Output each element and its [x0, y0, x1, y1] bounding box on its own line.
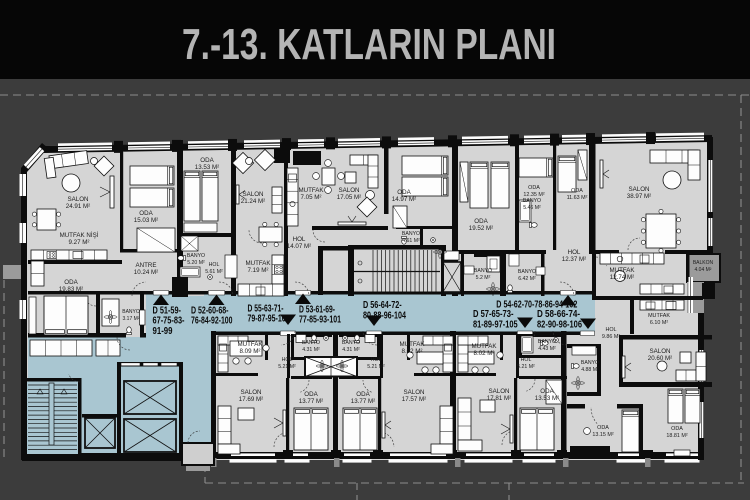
svg-text:7.-13. KATLARIN PLANI: 7.-13. KATLARIN PLANI [182, 20, 556, 69]
svg-text:15.03 M²: 15.03 M² [134, 217, 158, 224]
svg-text:4.43 M²: 4.43 M² [538, 346, 556, 352]
svg-text:4.04 M²: 4.04 M² [695, 267, 712, 273]
svg-text:BALKON: BALKON [693, 260, 714, 266]
svg-text:SALON: SALON [650, 348, 671, 355]
svg-text:13.77 M²: 13.77 M² [299, 398, 323, 405]
svg-text:12.74 M²: 12.74 M² [610, 274, 634, 281]
svg-text:HOL: HOL [521, 357, 532, 363]
svg-text:81-89-97-105: 81-89-97-105 [473, 320, 518, 331]
svg-text:ODA: ODA [200, 157, 214, 164]
svg-text:SALON: SALON [243, 191, 264, 198]
svg-text:7.05 M²: 7.05 M² [301, 194, 322, 201]
svg-text:HOL: HOL [293, 236, 306, 243]
svg-text:5.46 M²: 5.46 M² [523, 205, 541, 211]
svg-text:17.69 M²: 17.69 M² [239, 396, 263, 403]
svg-text:ODA: ODA [139, 210, 153, 217]
svg-text:MUTFAK: MUTFAK [399, 341, 425, 348]
svg-text:BANYO: BANYO [518, 269, 536, 275]
svg-text:HOL: HOL [371, 357, 382, 363]
svg-text:BANYO: BANYO [122, 309, 140, 315]
svg-text:82-90-98-106: 82-90-98-106 [537, 320, 582, 331]
svg-text:4.31 M²: 4.31 M² [342, 347, 360, 353]
svg-text:19.83 M²: 19.83 M² [59, 286, 83, 293]
svg-text:12.37 M²: 12.37 M² [562, 256, 586, 263]
svg-text:MUTFAK: MUTFAK [609, 267, 635, 274]
svg-text:5.21 M²: 5.21 M² [517, 364, 535, 370]
svg-text:5.20 M²: 5.20 M² [187, 260, 205, 266]
svg-text:ODA: ODA [356, 391, 370, 398]
svg-text:4.31 M²: 4.31 M² [302, 347, 320, 353]
svg-text:5.2 M²: 5.2 M² [476, 275, 491, 281]
svg-text:SALON: SALON [68, 196, 89, 203]
svg-text:20.60 M²: 20.60 M² [648, 355, 672, 362]
svg-text:D 58-66-74-: D 58-66-74- [537, 309, 580, 320]
svg-text:ANTRE: ANTRE [136, 262, 157, 269]
svg-text:SALON: SALON [629, 186, 650, 193]
svg-text:8.02 M²: 8.02 M² [402, 348, 423, 355]
svg-text:ODA: ODA [304, 391, 318, 398]
svg-text:SALON: SALON [404, 389, 425, 396]
svg-text:SALON: SALON [489, 388, 510, 395]
svg-text:BANYO: BANYO [342, 340, 360, 346]
svg-text:BANYO: BANYO [302, 340, 320, 346]
svg-text:BANYO: BANYO [402, 231, 420, 237]
svg-text:SALON: SALON [241, 389, 262, 396]
svg-text:11.63 M²: 11.63 M² [567, 195, 588, 201]
svg-text:MUTFAK: MUTFAK [237, 341, 263, 348]
svg-text:HOL: HOL [282, 357, 293, 363]
svg-text:18.81 M²: 18.81 M² [666, 433, 687, 439]
svg-text:BANYO: BANYO [581, 360, 599, 366]
svg-text:MUTFAK: MUTFAK [298, 187, 324, 194]
svg-text:24.91 M²: 24.91 M² [66, 203, 90, 210]
svg-text:19.52 M²: 19.52 M² [469, 225, 493, 232]
svg-text:17.57 M²: 17.57 M² [402, 396, 426, 403]
svg-text:6.10 M²: 6.10 M² [650, 320, 668, 326]
svg-text:17.81 M²: 17.81 M² [487, 395, 511, 402]
svg-text:91-99: 91-99 [153, 326, 173, 337]
svg-text:14.07 M²: 14.07 M² [287, 243, 311, 250]
svg-text:HOL: HOL [605, 327, 616, 333]
svg-text:77-85-93-101: 77-85-93-101 [299, 315, 341, 326]
svg-text:ODA: ODA [540, 388, 554, 395]
svg-text:9.86 M²: 9.86 M² [602, 334, 620, 340]
svg-text:MUTFAK: MUTFAK [648, 313, 670, 319]
svg-text:BANYO: BANYO [523, 198, 541, 204]
svg-text:MUTFAK: MUTFAK [245, 260, 271, 267]
svg-text:6.42 M²: 6.42 M² [518, 276, 536, 282]
svg-text:21.24 M²: 21.24 M² [241, 198, 265, 205]
svg-text:76-84-92-100: 76-84-92-100 [191, 316, 233, 327]
svg-text:ODA: ODA [397, 189, 411, 196]
svg-text:BANYO: BANYO [538, 339, 556, 345]
svg-text:17.05 M²: 17.05 M² [337, 194, 361, 201]
svg-text:BANYO: BANYO [187, 253, 205, 259]
svg-text:9.27 M²: 9.27 M² [69, 239, 90, 246]
svg-text:ODA: ODA [528, 185, 540, 191]
svg-text:SALON: SALON [339, 187, 360, 194]
svg-text:13.53 M²: 13.53 M² [195, 164, 219, 171]
svg-text:HOL: HOL [568, 249, 581, 256]
svg-text:MUTFAK: MUTFAK [471, 343, 497, 350]
svg-text:7.19 M²: 7.19 M² [248, 267, 269, 274]
svg-text:ODA: ODA [671, 426, 683, 432]
svg-text:D 57-65-73-: D 57-65-73- [473, 309, 514, 320]
svg-text:13.53 M²: 13.53 M² [535, 395, 559, 402]
svg-text:8.02 M²: 8.02 M² [474, 350, 495, 357]
svg-text:HOL: HOL [209, 262, 220, 268]
svg-text:ODA: ODA [64, 279, 78, 286]
svg-text:10.24 M²: 10.24 M² [134, 269, 158, 276]
svg-text:13.15 M²: 13.15 M² [592, 432, 613, 438]
svg-text:BANYO: BANYO [474, 268, 492, 274]
svg-text:ODA: ODA [474, 218, 488, 225]
svg-text:MUTFAK NİŞİ: MUTFAK NİŞİ [60, 232, 99, 239]
svg-text:13.77 M²: 13.77 M² [351, 398, 375, 405]
svg-text:8.09 M²: 8.09 M² [240, 348, 261, 355]
svg-text:ODA: ODA [597, 425, 609, 431]
svg-text:5.21 M²: 5.21 M² [367, 364, 385, 370]
svg-text:14.97 M²: 14.97 M² [392, 196, 416, 203]
svg-text:5.61 M²: 5.61 M² [205, 269, 223, 275]
svg-text:4.61 M²: 4.61 M² [402, 238, 420, 244]
svg-text:4.88 M²: 4.88 M² [581, 367, 599, 373]
svg-text:3.17 M²: 3.17 M² [123, 316, 140, 322]
svg-text:5.21 M²: 5.21 M² [278, 364, 296, 370]
svg-text:ODA: ODA [571, 188, 583, 194]
svg-text:38.97 M²: 38.97 M² [627, 193, 651, 200]
